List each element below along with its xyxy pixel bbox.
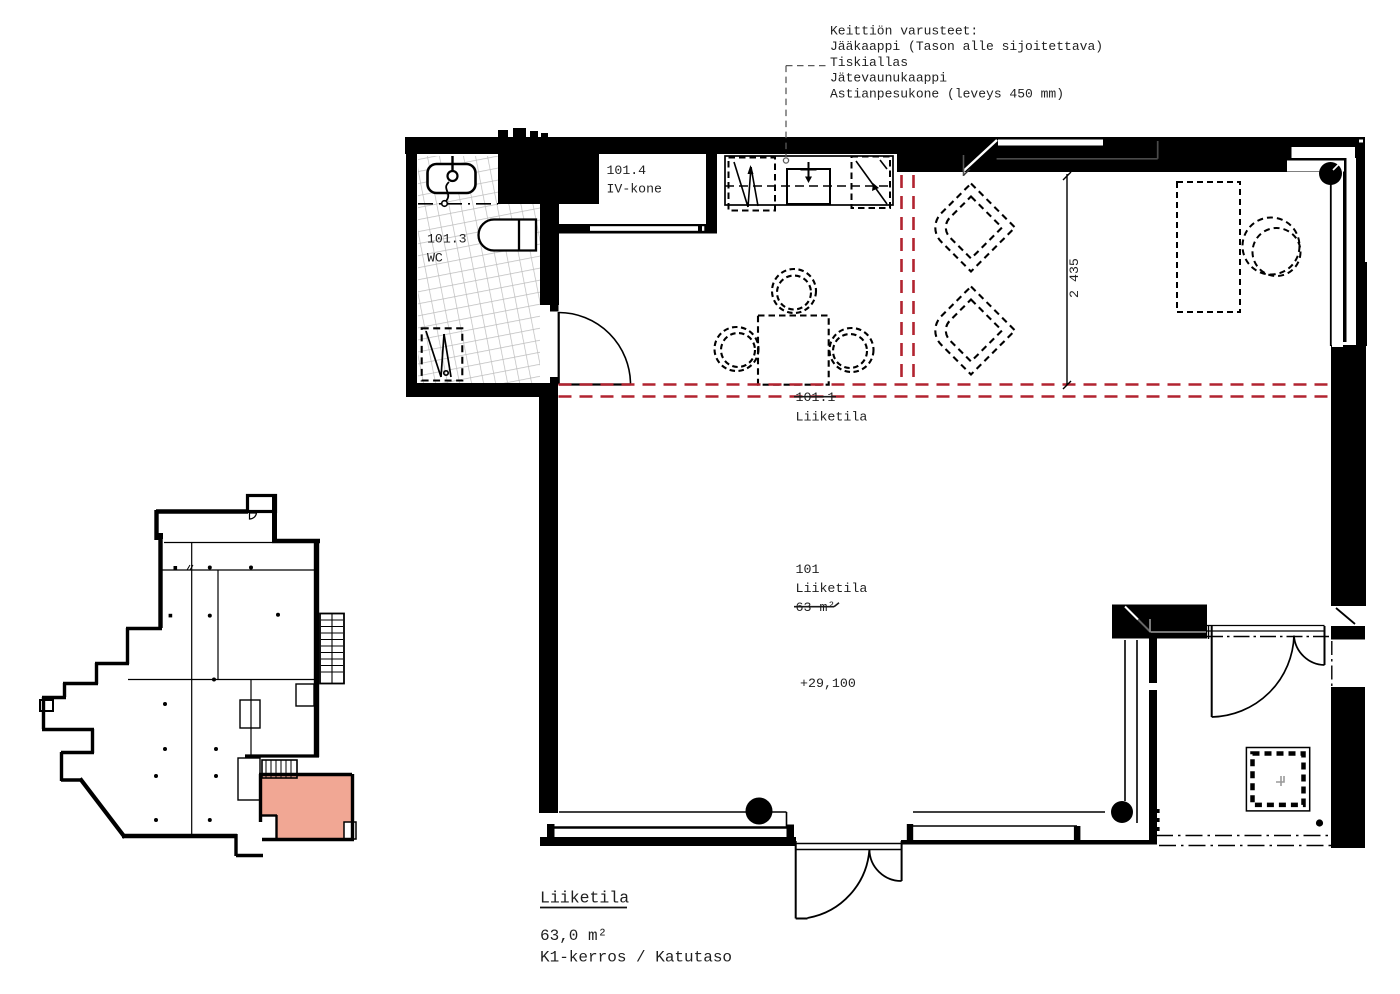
svg-text:K1-kerros / Katutaso: K1-kerros / Katutaso	[540, 949, 732, 967]
svg-text:101.4: 101.4	[607, 163, 647, 178]
svg-text:+29,100: +29,100	[800, 676, 856, 691]
svg-text:Astianpesukone (leveys 450 mm): Astianpesukone (leveys 450 mm)	[830, 86, 1064, 101]
svg-text:Liiketila: Liiketila	[540, 889, 629, 908]
svg-text:63,0 m²: 63,0 m²	[540, 927, 607, 945]
svg-text:101.3: 101.3	[427, 232, 467, 247]
svg-text:101: 101	[796, 562, 820, 577]
svg-text:WC: WC	[427, 251, 443, 266]
svg-text:Liiketila: Liiketila	[796, 409, 868, 424]
svg-text:2 435: 2 435	[1067, 258, 1082, 298]
svg-text:Tiskiallas: Tiskiallas	[830, 55, 908, 70]
svg-text:Jätevaunukaappi: Jätevaunukaappi	[830, 71, 947, 86]
svg-text:Jääkaappi (Tason alle sijoitet: Jääkaappi (Tason alle sijoitettava)	[830, 39, 1103, 54]
svg-text:IV-kone: IV-kone	[607, 182, 662, 197]
svg-text:Keittiön varusteet:: Keittiön varusteet:	[830, 24, 978, 39]
svg-text:Liiketila: Liiketila	[796, 581, 868, 596]
